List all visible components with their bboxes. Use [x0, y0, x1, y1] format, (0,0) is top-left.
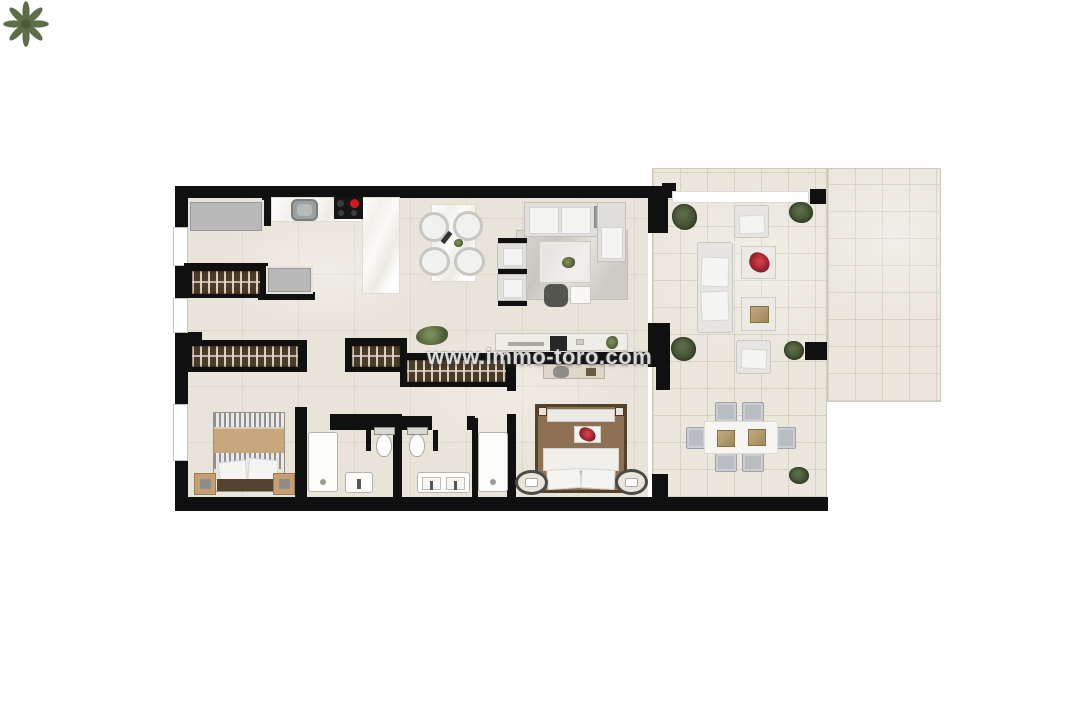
- terrace-bush: [672, 204, 697, 230]
- faucet: [430, 481, 433, 490]
- window-1: [173, 227, 188, 266]
- door-jamb-toilet2: [433, 430, 438, 451]
- table-plant-sprig: [454, 239, 463, 247]
- dining-chair: [454, 247, 485, 276]
- wall-bottom: [175, 497, 828, 511]
- shower-1: [308, 432, 338, 492]
- outdoor-sofa: [697, 242, 733, 333]
- sink-basin: [297, 204, 312, 216]
- wardrobe-slats: [192, 346, 298, 367]
- table-tray: [748, 429, 766, 446]
- kitchen-island: [362, 197, 400, 294]
- outdoor-chair: [742, 402, 764, 422]
- pouf: [544, 284, 568, 307]
- wall-top: [178, 186, 662, 198]
- outdoor-chair: [715, 453, 737, 472]
- burner: [351, 210, 357, 216]
- wardrobe-slats: [192, 271, 260, 294]
- toilet-1: [374, 427, 395, 458]
- bed1-duvet: [214, 427, 284, 455]
- terrace-bush: [671, 337, 696, 361]
- wardrobe-bedroom1: [183, 340, 307, 372]
- window-2: [173, 298, 188, 333]
- bed2-post: [538, 407, 547, 416]
- outdoor-chair: [776, 427, 796, 449]
- nightstand-knob: [200, 479, 211, 489]
- nightstand-deco: [625, 478, 638, 487]
- dining-chair: [453, 211, 483, 241]
- armchair: [497, 243, 527, 269]
- outdoor-chair: [742, 453, 764, 472]
- outdoor-chair: [686, 427, 706, 449]
- wardrobe-utility: [184, 263, 268, 298]
- pergola-post: [805, 342, 827, 360]
- wall-divider-mid2: [656, 362, 670, 390]
- floor-plan-canvas: www.immo-toro.com: [0, 0, 1080, 720]
- terrace-bush: [784, 341, 804, 360]
- wall-divider-bottom: [652, 474, 668, 498]
- utility-appliance-counter: [188, 200, 264, 233]
- wardrobe-hall-a: [345, 338, 407, 372]
- washer-unit: [266, 266, 313, 294]
- armchair-cushion: [503, 248, 523, 266]
- table-tray: [717, 430, 735, 447]
- coffee-table-plant: [562, 257, 575, 268]
- burner: [337, 200, 344, 207]
- sofa-cushion: [700, 291, 729, 322]
- faucet: [357, 479, 361, 489]
- side-table-bar: [498, 301, 527, 306]
- outdoor-armchair: [734, 205, 769, 238]
- burner-red: [350, 199, 359, 208]
- armchair: [497, 274, 527, 301]
- shower-2: [478, 432, 508, 492]
- toilet-2: [407, 427, 428, 458]
- red-plant: [747, 250, 773, 275]
- pergola-post: [810, 189, 826, 204]
- outdoor-dining-table: [704, 421, 778, 454]
- bed2-pillow: [546, 468, 581, 490]
- bed2-top-band: [547, 409, 615, 422]
- nightstand-deco: [525, 478, 538, 487]
- kitchen-sink: [291, 199, 318, 221]
- armchair-cushion: [740, 348, 767, 369]
- burner: [338, 210, 344, 216]
- shower-drain: [320, 479, 326, 485]
- double-washbasin: [417, 472, 470, 493]
- sofa-cushion: [700, 257, 729, 288]
- watermark-text: www.immo-toro.com: [427, 344, 652, 370]
- bed1-frame-foot: [217, 479, 281, 491]
- sofa-cushion: [529, 207, 559, 234]
- terrace-bush: [789, 467, 809, 484]
- palm-plant: [0, 0, 52, 48]
- bed2-pillow: [580, 468, 615, 490]
- bed-2: [535, 404, 627, 493]
- armchair-cushion: [503, 279, 523, 298]
- toilet-bowl: [376, 434, 392, 457]
- side-table-white: [570, 286, 591, 304]
- sofa-chaise: [597, 202, 626, 262]
- stove: [334, 197, 363, 219]
- faucet: [454, 481, 457, 490]
- table-tray: [750, 306, 769, 323]
- pergola-beam: [672, 191, 809, 203]
- outdoor-coffee-table: [741, 246, 776, 279]
- bed2-post: [615, 407, 624, 416]
- outdoor-armchair: [736, 340, 771, 374]
- wall-divider-top: [648, 196, 668, 233]
- terrace-floor-right: [827, 168, 941, 402]
- nightstand-knob: [279, 479, 290, 489]
- round-nightstand: [615, 469, 648, 495]
- outdoor-chair: [715, 402, 737, 422]
- shower-drain: [490, 479, 496, 485]
- washbasin-1: [345, 472, 373, 493]
- armchair-cushion: [739, 214, 766, 234]
- terrace-bush: [789, 202, 813, 223]
- nightstand: [194, 473, 216, 495]
- chaise-cushion: [601, 227, 623, 259]
- window-3: [173, 404, 188, 461]
- door-jamb-toilet1: [366, 430, 371, 451]
- outdoor-coffee-table: [741, 297, 776, 331]
- sofa-cushion: [561, 207, 591, 234]
- round-nightstand: [515, 470, 548, 495]
- nightstand: [273, 473, 295, 495]
- wardrobe-slats: [352, 346, 400, 367]
- wall-bed1-bath1: [295, 407, 307, 498]
- toilet-bowl: [409, 434, 425, 457]
- dining-chair: [419, 247, 450, 276]
